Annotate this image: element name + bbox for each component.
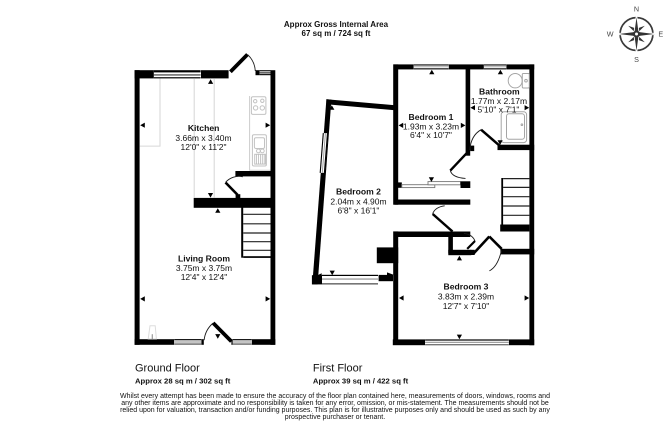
svg-text:5'10" x 7'1": 5'10" x 7'1" xyxy=(478,104,520,114)
svg-text:any other items are approximat: any other items are approximate and no r… xyxy=(121,400,549,407)
svg-text:Ground Floor: Ground Floor xyxy=(135,363,200,375)
svg-text:E: E xyxy=(658,30,663,39)
svg-text:12'0" x 11'2": 12'0" x 11'2" xyxy=(181,142,227,152)
svg-text:S: S xyxy=(634,55,639,64)
svg-text:6'8" x 16'1": 6'8" x 16'1" xyxy=(338,205,380,215)
svg-text:First Floor: First Floor xyxy=(313,363,363,375)
svg-text:W: W xyxy=(607,30,614,39)
svg-text:prospective purchaser or tenan: prospective purchaser or tenant. xyxy=(285,414,385,421)
svg-text:relied upon for valuation, tra: relied upon for valuation, transaction a… xyxy=(120,407,550,414)
svg-text:Bedroom 2: Bedroom 2 xyxy=(336,186,381,196)
svg-text:67 sq m / 724 sq ft: 67 sq m / 724 sq ft xyxy=(302,29,371,38)
svg-text:12'4" x 12'4": 12'4" x 12'4" xyxy=(181,272,228,282)
svg-text:Whilst every attempt has been: Whilst every attempt has been made to en… xyxy=(120,393,550,400)
svg-text:Approx 28 sq m / 302 sq ft: Approx 28 sq m / 302 sq ft xyxy=(135,377,231,386)
svg-text:Kitchen: Kitchen xyxy=(188,123,220,133)
svg-text:Approx Gross Internal Area: Approx Gross Internal Area xyxy=(284,20,389,29)
svg-text:N: N xyxy=(634,4,639,13)
svg-text:Bedroom 3: Bedroom 3 xyxy=(444,282,489,292)
svg-text:12'7" x 7'10": 12'7" x 7'10" xyxy=(443,301,490,311)
svg-text:Approx 39 sq m / 422 sq ft: Approx 39 sq m / 422 sq ft xyxy=(313,377,409,386)
svg-text:3.83m x 2.39m: 3.83m x 2.39m xyxy=(438,292,494,302)
svg-text:6'4" x 10'7": 6'4" x 10'7" xyxy=(410,130,452,140)
